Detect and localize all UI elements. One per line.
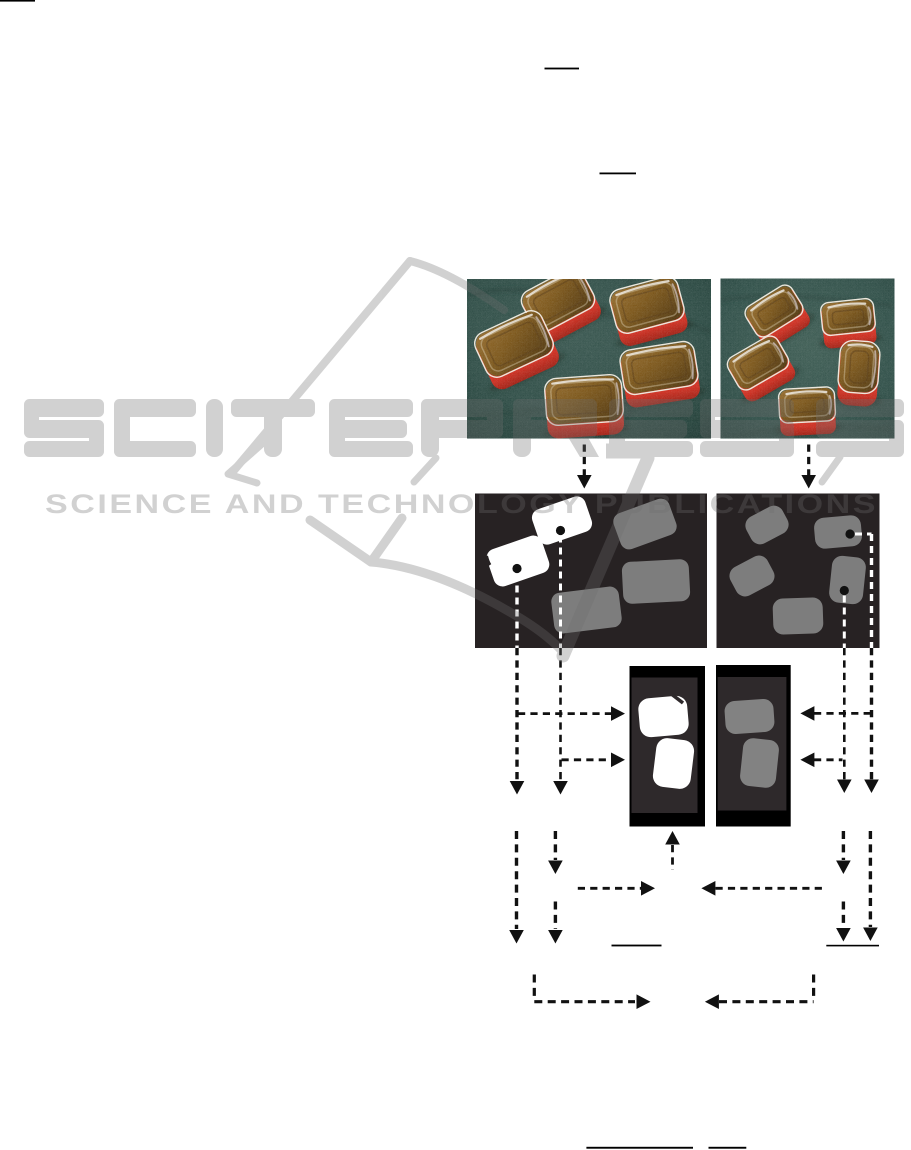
svg-text:SCIENCE AND TECHNOLOGY PUBLICA: SCIENCE AND TECHNOLOGY PUBLICATIONS	[45, 489, 878, 519]
